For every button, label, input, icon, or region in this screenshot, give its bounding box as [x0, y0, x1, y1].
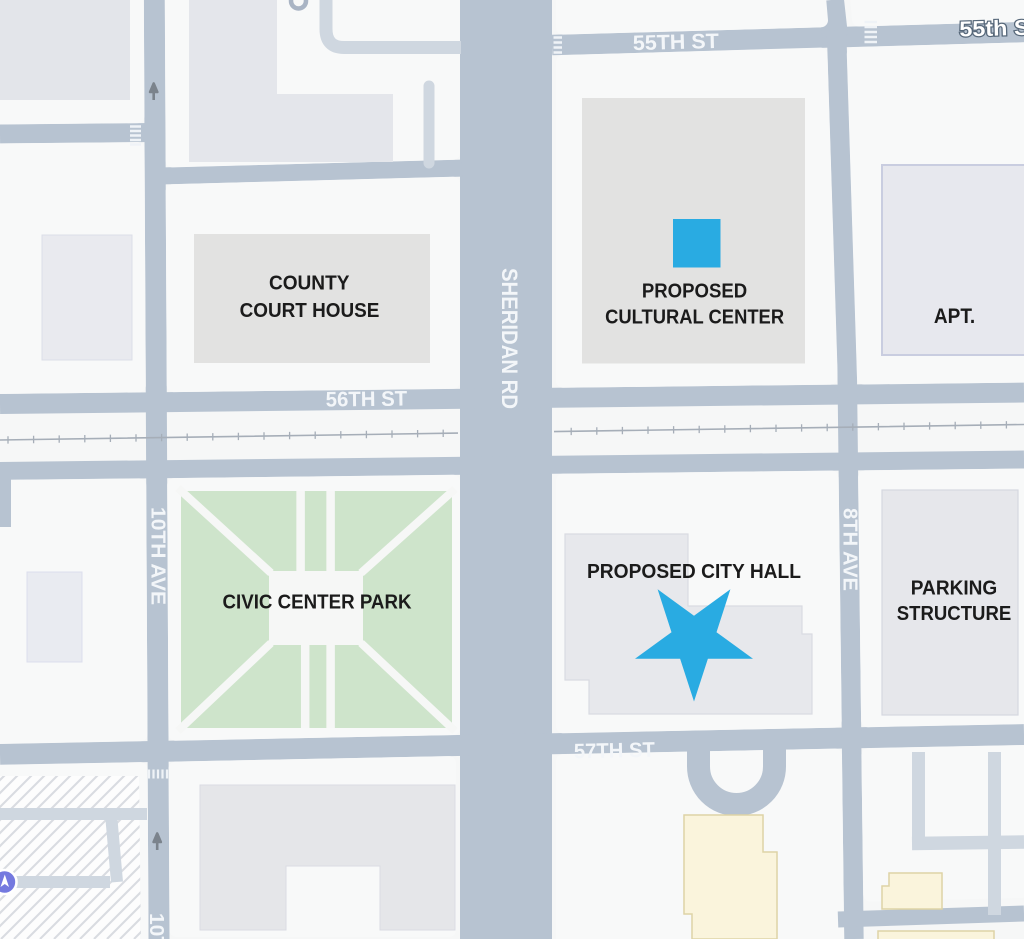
svg-text:STRUCTURE: STRUCTURE: [897, 603, 1012, 625]
svg-text:57TH ST: 57TH ST: [574, 739, 656, 764]
svg-text:PROPOSED CITY HALL: PROPOSED CITY HALL: [587, 561, 801, 583]
svg-text:10TH AVE: 10TH AVE: [147, 507, 169, 605]
svg-text:PARKING: PARKING: [911, 578, 998, 600]
svg-text:SHERIDAN RD: SHERIDAN RD: [497, 268, 522, 409]
svg-text:55TH ST: 55TH ST: [633, 30, 720, 55]
svg-text:PROPOSED: PROPOSED: [642, 281, 747, 303]
svg-text:8TH AVE: 8TH AVE: [839, 508, 861, 591]
svg-text:APT.: APT.: [934, 304, 975, 328]
svg-text:COUNTY: COUNTY: [269, 273, 350, 295]
svg-text:CULTURAL CENTER: CULTURAL CENTER: [605, 307, 785, 329]
svg-text:COURT HOUSE: COURT HOUSE: [240, 300, 380, 322]
svg-text:10TH AVE: 10TH AVE: [145, 913, 167, 939]
svg-text:55th St: 55th St: [959, 15, 1024, 41]
svg-text:56TH ST: 56TH ST: [326, 388, 408, 412]
svg-text:CIVIC CENTER PARK: CIVIC CENTER PARK: [223, 591, 413, 613]
